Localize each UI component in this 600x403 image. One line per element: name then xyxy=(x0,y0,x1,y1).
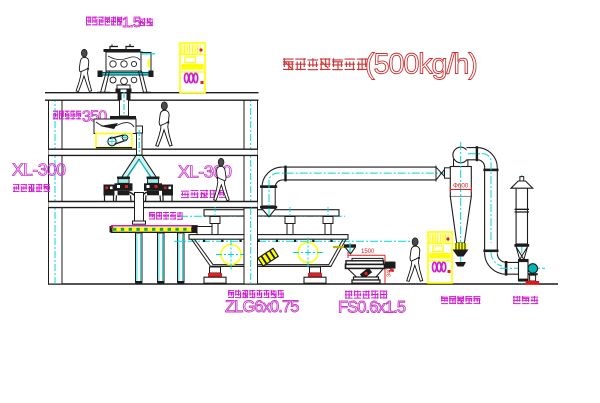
svg-text:340: 340 xyxy=(387,268,393,277)
svg-text:1.5: 1.5 xyxy=(122,14,141,31)
svg-text:ZLG6x0.75: ZLG6x0.75 xyxy=(225,298,299,316)
svg-text:Φ600: Φ600 xyxy=(453,183,469,190)
svg-text:1500: 1500 xyxy=(361,249,375,255)
svg-text:FS0.6x1.5: FS0.6x1.5 xyxy=(338,299,406,317)
svg-text:XL-300: XL-300 xyxy=(12,160,66,180)
svg-text:(500kg/h): (500kg/h) xyxy=(365,49,477,81)
